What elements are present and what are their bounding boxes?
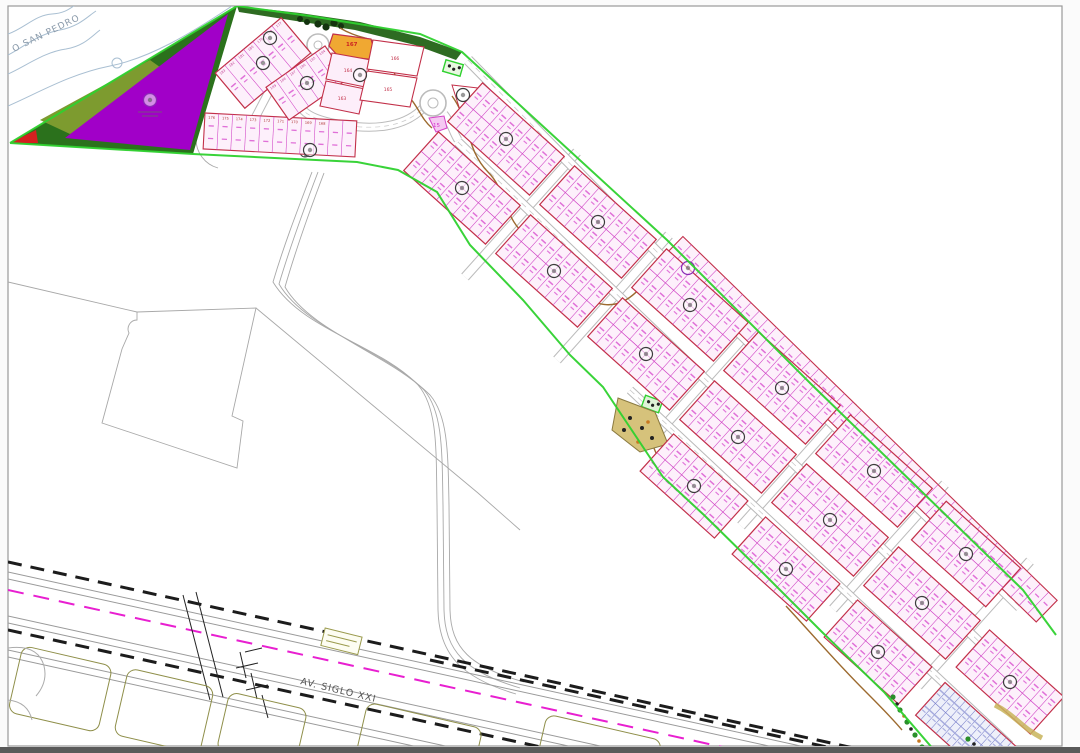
screenshot-stage: 1761751741731721711701691681831821811801… bbox=[0, 0, 1080, 753]
lot-number: 174 bbox=[236, 117, 244, 121]
edge-lot-strip: 176175174173172171170169168 bbox=[203, 113, 357, 157]
labeled-lot: 165 bbox=[360, 71, 417, 107]
pink-shape-number: 15 bbox=[433, 123, 440, 129]
bottom-edge-bar bbox=[0, 747, 1080, 753]
lot-number: 176 bbox=[208, 116, 216, 120]
block-marker bbox=[354, 69, 367, 82]
lot-number: 172 bbox=[263, 119, 270, 123]
lot-number: 163 bbox=[338, 96, 347, 102]
block-marker bbox=[682, 262, 695, 275]
block-marker bbox=[304, 144, 317, 157]
lot-number: 169 bbox=[305, 121, 313, 125]
block-marker bbox=[264, 32, 277, 45]
roundabout bbox=[420, 90, 446, 116]
lot-number: 175 bbox=[222, 116, 229, 120]
lot-number: 170 bbox=[291, 120, 299, 124]
lot-number: 171 bbox=[277, 119, 284, 123]
block-marker bbox=[457, 89, 470, 102]
lot-number: 165 bbox=[384, 87, 393, 93]
site-plan-drawing: 1761751741731721711701691681831821811801… bbox=[0, 0, 1080, 753]
lot-number: 168 bbox=[319, 121, 327, 125]
orange-lot-number: 167 bbox=[346, 42, 358, 48]
block-marker bbox=[144, 94, 157, 107]
lot-number: 166 bbox=[391, 56, 400, 62]
lot-number: 164 bbox=[344, 68, 353, 74]
labeled-lot: 166 bbox=[367, 40, 424, 76]
lot-number: 173 bbox=[250, 118, 257, 122]
